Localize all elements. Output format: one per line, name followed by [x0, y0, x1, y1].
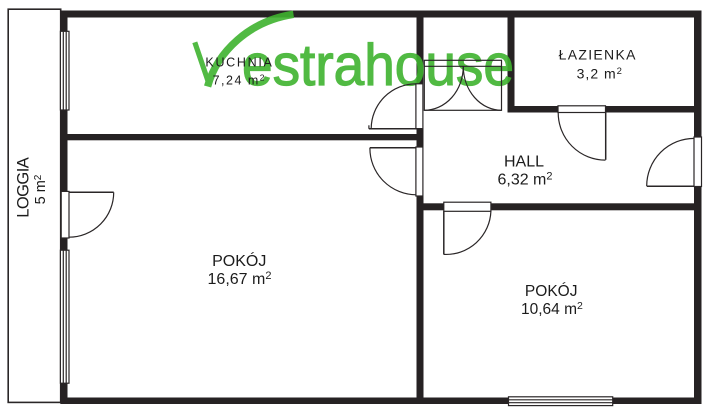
svg-text:estrahouse: estrahouse	[242, 33, 514, 98]
svg-text:HALL: HALL	[504, 154, 544, 171]
svg-text:3,2 m2: 3,2 m2	[577, 65, 623, 81]
svg-text:KUCHNIA: KUCHNIA	[205, 55, 273, 69]
svg-text:7,24 m2: 7,24 m2	[213, 73, 266, 88]
svg-text:POKÓJ: POKÓJ	[525, 283, 578, 300]
svg-text:ŁAZIENKA: ŁAZIENKA	[559, 47, 637, 63]
svg-text:16,67 m2: 16,67 m2	[208, 270, 272, 288]
svg-text:POKÓJ: POKÓJ	[212, 251, 266, 270]
svg-text:10,64 m2: 10,64 m2	[521, 300, 583, 318]
svg-text:6,32 m2: 6,32 m2	[497, 170, 552, 188]
svg-text:LOGGIA: LOGGIA	[14, 157, 32, 218]
